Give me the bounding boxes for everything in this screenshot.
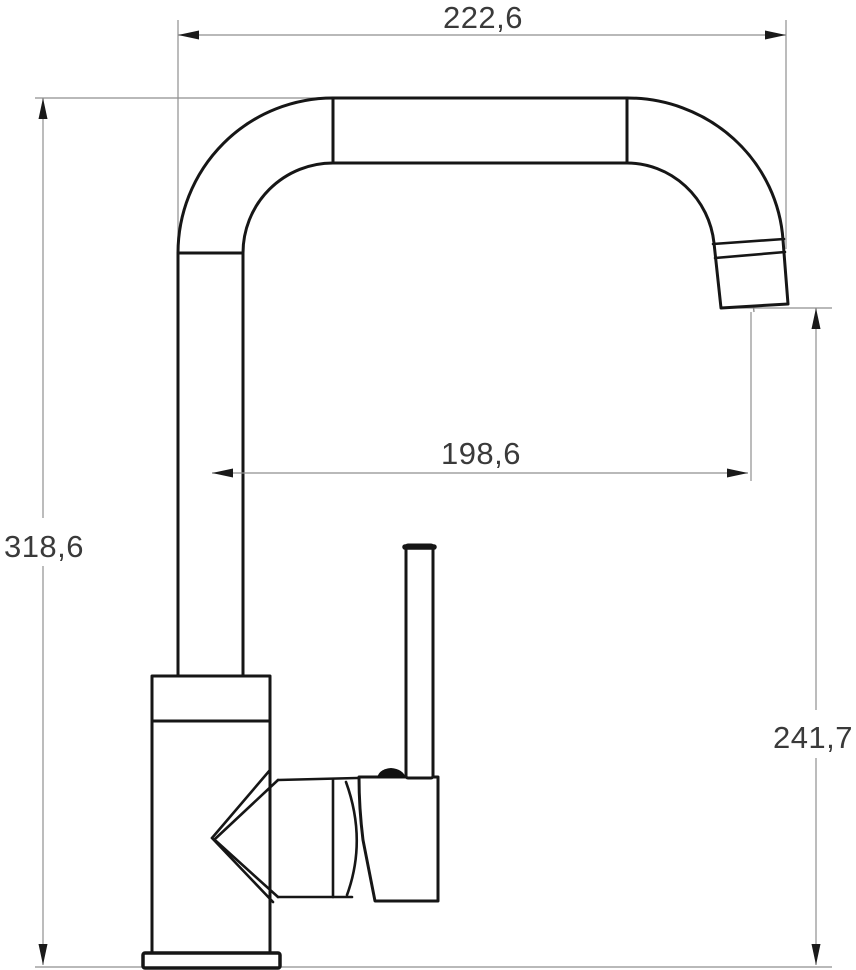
dim-top-width: 222,6 xyxy=(178,0,786,40)
arrow-up-icon xyxy=(812,308,821,329)
centerlines xyxy=(212,226,755,962)
arrow-up-icon xyxy=(39,98,48,119)
dim-outlet-height: 241,7 xyxy=(773,308,853,965)
arrow-right-icon xyxy=(727,469,748,478)
faucet-body xyxy=(152,721,270,953)
housing-top-edge xyxy=(278,778,357,780)
dim-overall-height: 318,6 xyxy=(4,98,84,965)
arrow-right-icon xyxy=(765,31,786,40)
arrow-down-icon xyxy=(39,944,48,965)
faucet xyxy=(143,98,788,968)
arrow-down-icon xyxy=(812,944,821,965)
dim-label-overall-height: 318,6 xyxy=(4,529,84,564)
base-flange xyxy=(143,953,280,968)
handle-lever xyxy=(405,545,434,778)
spout-tube xyxy=(178,98,788,676)
arrow-left-icon xyxy=(178,31,199,40)
dim-label-outlet-height: 241,7 xyxy=(773,720,853,755)
dim-spout-reach: 198,6 xyxy=(212,436,748,478)
dim-label-spout-reach: 198,6 xyxy=(441,436,521,471)
drawing-canvas: 222,6 318,6 198,6 241,7 xyxy=(0,0,856,970)
handle-block xyxy=(359,777,438,901)
pivot-joint xyxy=(377,768,406,778)
dim-label-top-width: 222,6 xyxy=(443,0,523,35)
pipe-collar xyxy=(152,676,270,721)
lever-bar xyxy=(406,545,433,778)
ball-joint-curve xyxy=(346,782,357,895)
faucet-technical-drawing: 222,6 318,6 198,6 241,7 xyxy=(0,0,856,970)
